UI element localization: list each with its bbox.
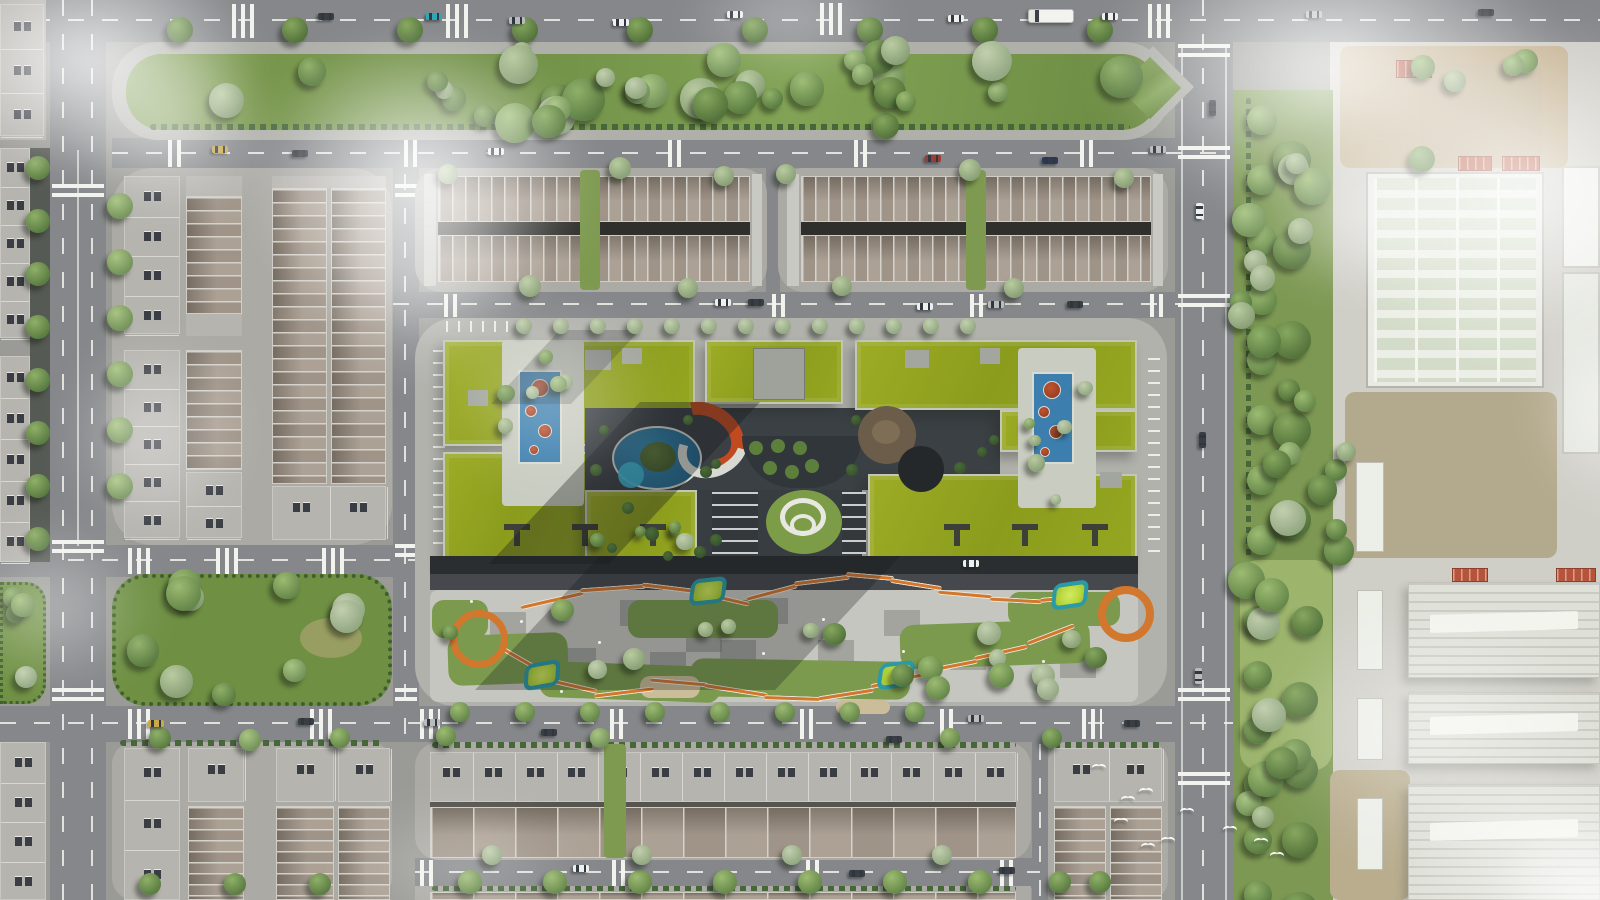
tree bbox=[968, 870, 992, 894]
car bbox=[1199, 432, 1206, 448]
roof-window bbox=[218, 765, 225, 774]
roof-vent bbox=[944, 524, 970, 546]
unit bbox=[1, 439, 29, 481]
roof-window bbox=[356, 765, 363, 774]
roof-window bbox=[17, 315, 24, 324]
tree bbox=[738, 318, 754, 334]
tree bbox=[212, 683, 235, 706]
tree bbox=[883, 870, 907, 894]
crosswalk bbox=[1178, 772, 1230, 788]
crosswalk bbox=[668, 140, 684, 167]
roof-window bbox=[15, 877, 22, 886]
car bbox=[424, 719, 440, 726]
tree bbox=[1042, 728, 1062, 748]
roof-window bbox=[1137, 765, 1144, 774]
tree bbox=[436, 726, 456, 746]
vent-stem bbox=[1092, 530, 1098, 546]
shrub bbox=[977, 447, 987, 457]
lane-marking bbox=[1039, 744, 1041, 900]
dot bbox=[763, 461, 777, 475]
tree bbox=[798, 870, 822, 894]
unit bbox=[1, 481, 29, 523]
roof-window bbox=[17, 373, 24, 382]
crosswalk bbox=[216, 548, 238, 574]
parking-stalls bbox=[842, 492, 866, 554]
bird-icon bbox=[1141, 841, 1155, 849]
crosswalk bbox=[322, 548, 344, 574]
unit bbox=[515, 753, 558, 801]
dot bbox=[793, 441, 807, 455]
tree bbox=[588, 660, 607, 679]
unit bbox=[933, 753, 976, 801]
roof-window bbox=[537, 768, 544, 777]
roof-window bbox=[303, 503, 310, 512]
shrub bbox=[622, 502, 634, 514]
dot bbox=[902, 650, 905, 653]
shrub bbox=[851, 415, 861, 425]
dot bbox=[560, 690, 563, 693]
unit bbox=[431, 753, 474, 801]
tree bbox=[1324, 535, 1354, 565]
block bbox=[787, 174, 799, 286]
tree bbox=[590, 533, 604, 547]
townhouse-units bbox=[430, 752, 1016, 802]
tree bbox=[926, 676, 950, 700]
car bbox=[1124, 720, 1140, 727]
roof-window bbox=[746, 768, 753, 777]
tree bbox=[1247, 525, 1277, 555]
tree bbox=[678, 278, 698, 298]
tree bbox=[989, 663, 1014, 688]
roof-window bbox=[17, 414, 24, 423]
townhouse-units bbox=[188, 748, 244, 802]
car bbox=[988, 301, 1004, 308]
tree bbox=[664, 318, 680, 334]
unit bbox=[1, 783, 45, 824]
roof-window bbox=[216, 519, 223, 528]
roof-window bbox=[293, 503, 300, 512]
roof-window bbox=[25, 758, 32, 767]
tree bbox=[803, 623, 819, 639]
tree bbox=[166, 576, 201, 611]
tree bbox=[107, 249, 133, 275]
unit bbox=[1, 862, 45, 900]
townhouse-units bbox=[276, 748, 334, 802]
crosswalk bbox=[772, 294, 788, 317]
roof-window bbox=[7, 277, 14, 286]
shrub bbox=[645, 527, 659, 541]
shrub bbox=[694, 546, 706, 558]
roof-window bbox=[17, 239, 24, 248]
roof-window bbox=[527, 768, 534, 777]
roof-window bbox=[154, 232, 161, 241]
shrub bbox=[710, 534, 722, 546]
roof-window bbox=[366, 765, 373, 774]
tree bbox=[1078, 381, 1093, 396]
roof-window bbox=[7, 455, 14, 464]
tree bbox=[812, 318, 828, 334]
tree bbox=[330, 728, 350, 748]
tree bbox=[139, 873, 161, 895]
tree bbox=[239, 729, 261, 751]
shrub bbox=[989, 435, 999, 445]
roof-window bbox=[7, 496, 14, 505]
bird-icon bbox=[1223, 824, 1237, 832]
townhouse-units bbox=[0, 742, 46, 900]
roof-window bbox=[662, 768, 669, 777]
unit bbox=[189, 749, 246, 801]
crosswalk bbox=[610, 709, 628, 739]
tree bbox=[450, 702, 470, 722]
roof-window bbox=[360, 503, 367, 512]
unit bbox=[1, 225, 29, 264]
roof-window bbox=[1127, 765, 1134, 774]
hedge bbox=[432, 742, 1016, 748]
roof-window bbox=[861, 768, 868, 777]
tree bbox=[160, 665, 192, 697]
car bbox=[148, 720, 164, 727]
tree bbox=[776, 164, 796, 184]
tree bbox=[632, 845, 652, 865]
parking-stalls bbox=[1148, 358, 1160, 554]
tree bbox=[676, 533, 693, 550]
bird-icon bbox=[1180, 806, 1194, 814]
jogging-loop-west bbox=[450, 610, 508, 668]
ring-path bbox=[790, 514, 816, 536]
tree bbox=[26, 421, 50, 445]
car bbox=[968, 715, 984, 722]
tree bbox=[627, 17, 653, 43]
roof-window bbox=[830, 768, 837, 777]
unit bbox=[1, 357, 29, 399]
tree bbox=[26, 315, 50, 339]
dot bbox=[762, 652, 765, 655]
dot bbox=[785, 465, 799, 479]
bird-icon bbox=[1139, 786, 1153, 794]
tree bbox=[782, 845, 802, 865]
unit bbox=[640, 753, 683, 801]
roof-window bbox=[17, 496, 24, 505]
tree bbox=[1051, 494, 1061, 504]
dot bbox=[805, 459, 819, 473]
tree bbox=[873, 113, 899, 139]
tree bbox=[905, 702, 925, 722]
play-circle bbox=[1043, 381, 1061, 399]
shrub bbox=[683, 415, 693, 425]
car bbox=[748, 299, 764, 306]
tree bbox=[1252, 806, 1274, 828]
car bbox=[318, 13, 334, 20]
tree bbox=[1244, 661, 1272, 689]
bird-icon bbox=[1254, 836, 1268, 844]
roof-window bbox=[144, 311, 151, 320]
unit bbox=[273, 487, 331, 539]
crosswalk bbox=[128, 709, 150, 739]
car bbox=[1067, 301, 1083, 308]
tree bbox=[1004, 278, 1024, 298]
roof-window bbox=[913, 768, 920, 777]
block bbox=[1100, 472, 1122, 488]
tree bbox=[107, 305, 133, 331]
tree bbox=[224, 873, 246, 895]
roof-window bbox=[871, 768, 878, 777]
block bbox=[966, 170, 986, 290]
tree bbox=[26, 474, 50, 498]
cloud bbox=[60, 40, 280, 220]
tree bbox=[849, 318, 865, 334]
roof-window bbox=[568, 768, 575, 777]
crosswalk bbox=[1150, 294, 1168, 317]
unit bbox=[125, 800, 179, 852]
dot bbox=[520, 620, 523, 623]
roof-window bbox=[820, 768, 827, 777]
crosswalk bbox=[970, 294, 986, 317]
unit bbox=[1, 822, 45, 863]
crosswalk bbox=[395, 544, 417, 560]
roof-window bbox=[154, 311, 161, 320]
car bbox=[509, 17, 525, 24]
tree bbox=[273, 572, 300, 599]
unit bbox=[1055, 749, 1110, 801]
shrub bbox=[663, 551, 673, 561]
play-circle bbox=[1038, 406, 1050, 418]
roof-window bbox=[25, 837, 32, 846]
roof-window bbox=[7, 373, 14, 382]
tree bbox=[1114, 168, 1134, 188]
tree bbox=[580, 702, 600, 722]
roof-window bbox=[736, 768, 743, 777]
bus bbox=[1028, 9, 1074, 23]
roof-window bbox=[485, 768, 492, 777]
tree bbox=[891, 664, 914, 687]
car bbox=[715, 299, 731, 306]
roof-window bbox=[7, 201, 14, 210]
tree bbox=[26, 209, 50, 233]
roof-window bbox=[7, 239, 14, 248]
roof-window bbox=[987, 768, 994, 777]
unit bbox=[330, 487, 388, 539]
block bbox=[752, 174, 762, 286]
car bbox=[1195, 668, 1202, 684]
roof-window bbox=[694, 768, 701, 777]
cloud bbox=[60, 330, 250, 540]
car bbox=[298, 718, 314, 725]
tree bbox=[1228, 302, 1255, 329]
tree bbox=[932, 845, 952, 865]
roof-window bbox=[208, 765, 215, 774]
bird-icon bbox=[1092, 762, 1106, 770]
tree bbox=[693, 87, 727, 121]
shrub bbox=[954, 462, 966, 474]
roof-window bbox=[297, 765, 304, 774]
tree bbox=[1247, 607, 1280, 640]
roof-window bbox=[144, 232, 151, 241]
tree bbox=[775, 318, 791, 334]
roof-window bbox=[144, 819, 151, 828]
crosswalk bbox=[854, 140, 870, 167]
shrub bbox=[700, 466, 712, 478]
crosswalk bbox=[52, 688, 104, 706]
tree bbox=[623, 648, 645, 670]
car bbox=[613, 19, 629, 26]
block bbox=[980, 348, 1000, 364]
tree bbox=[1263, 450, 1291, 478]
car bbox=[963, 560, 979, 567]
roof-window bbox=[17, 201, 24, 210]
tree bbox=[710, 702, 730, 722]
tree bbox=[26, 262, 50, 286]
tree bbox=[26, 368, 50, 392]
unit bbox=[766, 753, 809, 801]
car bbox=[917, 303, 933, 310]
unit bbox=[125, 217, 179, 258]
roof-window bbox=[144, 271, 151, 280]
shrub bbox=[711, 459, 721, 469]
unit bbox=[808, 753, 851, 801]
crosswalk bbox=[1080, 140, 1098, 167]
roof-window bbox=[350, 503, 357, 512]
roof-window bbox=[903, 768, 910, 777]
roof-window bbox=[1083, 765, 1090, 774]
tree bbox=[960, 318, 976, 334]
roof-window bbox=[652, 768, 659, 777]
tree bbox=[1049, 871, 1071, 893]
unit bbox=[1, 187, 29, 226]
bird-icon bbox=[1161, 835, 1175, 843]
tree bbox=[330, 600, 363, 633]
tree bbox=[972, 17, 998, 43]
aerial-master-plan bbox=[0, 0, 1600, 900]
townhouse-units bbox=[0, 148, 30, 338]
roof-window bbox=[144, 768, 151, 777]
bird-icon bbox=[1270, 850, 1284, 858]
unit bbox=[891, 753, 934, 801]
roof-window bbox=[997, 768, 1004, 777]
unit bbox=[1, 743, 45, 784]
roof-window bbox=[7, 414, 14, 423]
roof-window bbox=[15, 837, 22, 846]
vent-stem bbox=[954, 530, 960, 546]
shrub bbox=[846, 464, 858, 476]
roof-window bbox=[154, 271, 161, 280]
tree bbox=[1294, 390, 1316, 412]
unit bbox=[1, 398, 29, 440]
tree bbox=[1028, 454, 1045, 471]
tree bbox=[977, 621, 1001, 645]
unit bbox=[125, 256, 179, 297]
crosswalk bbox=[395, 688, 417, 704]
unit bbox=[1, 263, 29, 302]
roof-vent bbox=[1082, 524, 1108, 546]
cloud bbox=[440, 300, 660, 490]
car bbox=[426, 13, 442, 20]
roof-vent bbox=[1012, 524, 1038, 546]
tree bbox=[282, 17, 308, 43]
roof-window bbox=[704, 768, 711, 777]
roof-window bbox=[443, 768, 450, 777]
tree bbox=[840, 702, 860, 722]
roof-window bbox=[25, 877, 32, 886]
tree bbox=[645, 702, 665, 722]
vent-stem bbox=[1022, 530, 1028, 546]
roof-window bbox=[15, 758, 22, 767]
bird-icon bbox=[1121, 794, 1135, 802]
block bbox=[604, 744, 626, 858]
tree bbox=[923, 318, 939, 334]
shrub bbox=[607, 543, 617, 553]
dot bbox=[872, 420, 900, 444]
dot bbox=[598, 641, 601, 644]
tree bbox=[149, 727, 171, 749]
dot bbox=[771, 439, 785, 453]
tree bbox=[1326, 519, 1347, 540]
block bbox=[753, 348, 805, 400]
roof-window bbox=[7, 315, 14, 324]
dot bbox=[822, 618, 825, 621]
roof-window bbox=[578, 768, 585, 777]
tree bbox=[443, 625, 458, 640]
tree bbox=[940, 728, 960, 748]
roof-window bbox=[945, 768, 952, 777]
unit bbox=[1, 301, 29, 340]
townhouse-units bbox=[338, 748, 390, 802]
tree bbox=[309, 873, 331, 895]
roof-window bbox=[788, 768, 795, 777]
tree bbox=[669, 521, 681, 533]
tree bbox=[721, 619, 736, 634]
cloud bbox=[1240, 140, 1500, 300]
tree bbox=[886, 318, 902, 334]
unit bbox=[850, 753, 893, 801]
unit bbox=[1109, 749, 1164, 801]
tree bbox=[551, 599, 573, 621]
townhouse-units bbox=[272, 486, 386, 540]
car bbox=[999, 867, 1015, 874]
tree bbox=[1062, 630, 1080, 648]
roof-window bbox=[778, 768, 785, 777]
tree bbox=[959, 159, 981, 181]
roof-window bbox=[495, 768, 502, 777]
jogging-loop-east bbox=[1098, 586, 1154, 642]
container bbox=[1556, 568, 1596, 582]
container bbox=[1452, 568, 1488, 582]
tree bbox=[1270, 500, 1306, 536]
unit bbox=[557, 753, 600, 801]
dot bbox=[470, 600, 473, 603]
crosswalk bbox=[1178, 688, 1230, 704]
crosswalk bbox=[1082, 709, 1102, 739]
tree bbox=[628, 870, 652, 894]
tree bbox=[714, 166, 734, 186]
block bbox=[1356, 462, 1384, 552]
crosswalk bbox=[1178, 294, 1230, 310]
tree bbox=[1029, 435, 1040, 446]
crosswalk bbox=[612, 860, 628, 886]
car bbox=[1196, 203, 1203, 219]
roof-window bbox=[453, 768, 460, 777]
unit bbox=[473, 753, 516, 801]
car bbox=[948, 15, 964, 22]
dot bbox=[898, 446, 944, 492]
unit bbox=[339, 749, 392, 801]
tree bbox=[698, 622, 713, 637]
roof-window bbox=[154, 819, 161, 828]
tree bbox=[832, 276, 852, 296]
bird-icon bbox=[1114, 816, 1128, 824]
unit bbox=[724, 753, 767, 801]
roof-window bbox=[15, 798, 22, 807]
tree bbox=[724, 81, 757, 114]
